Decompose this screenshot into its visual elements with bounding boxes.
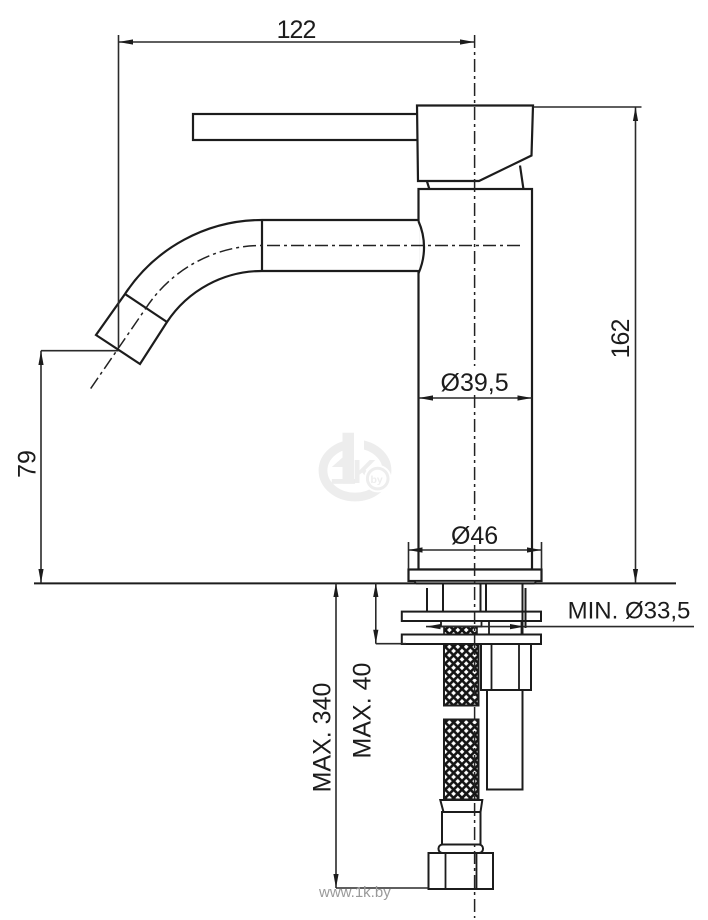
svg-text:Ø39,5: Ø39,5 bbox=[441, 369, 509, 397]
svg-text:162: 162 bbox=[607, 320, 635, 359]
svg-text:by: by bbox=[371, 474, 383, 486]
svg-text:79: 79 bbox=[14, 450, 42, 478]
svg-text:Ø46: Ø46 bbox=[451, 522, 498, 550]
svg-text:www.1k.by: www.1k.by bbox=[318, 884, 391, 901]
svg-text:MIN. Ø33,5: MIN. Ø33,5 bbox=[568, 598, 691, 625]
svg-text:122: 122 bbox=[277, 16, 316, 44]
svg-text:MAX. 340: MAX. 340 bbox=[309, 683, 337, 793]
svg-text:MAX. 40: MAX. 40 bbox=[349, 663, 377, 759]
